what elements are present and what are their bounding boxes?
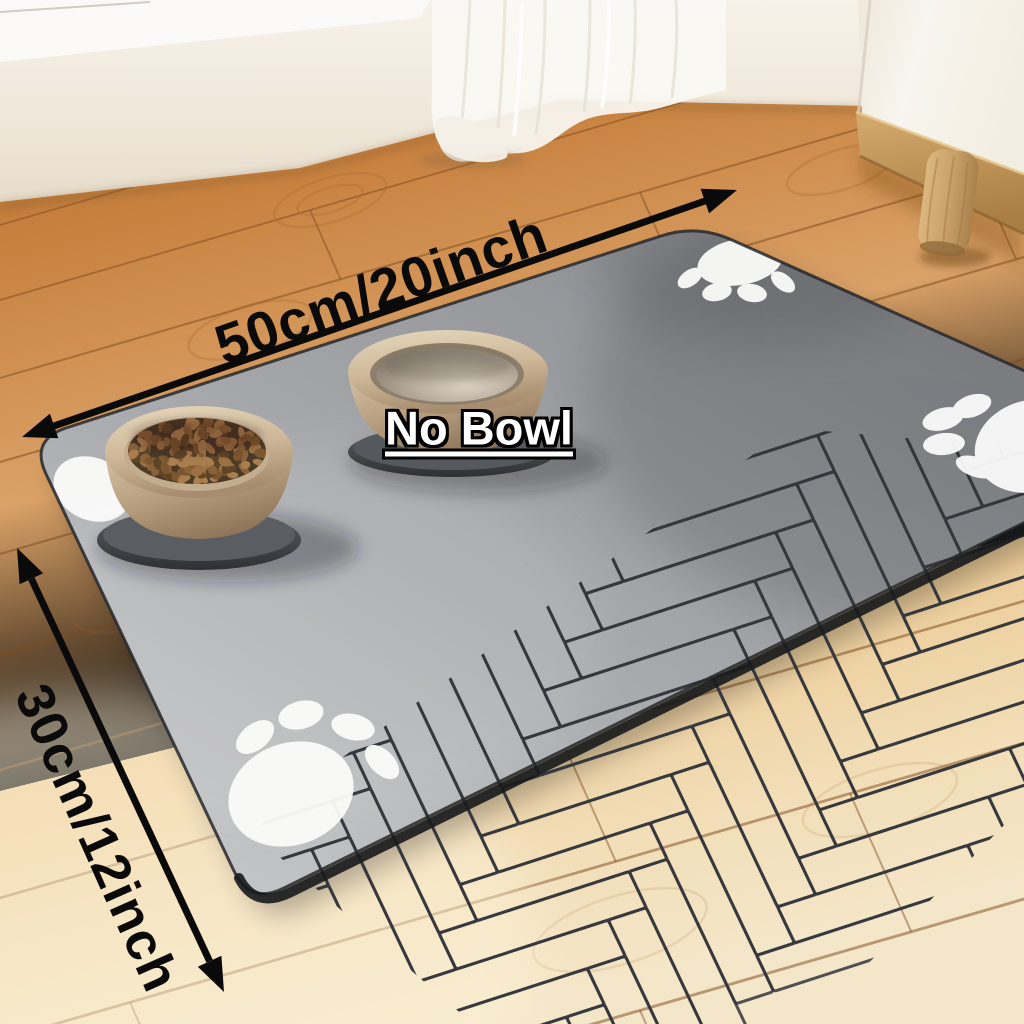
no-bowl-label: No Bowl [385, 401, 573, 456]
scene-svg [0, 0, 1024, 1024]
water-inner-shadow [383, 350, 511, 382]
kibble-top-shadow [131, 418, 263, 454]
product-photo: 50cm/20inch 30cm/12inch No Bowl [0, 0, 1024, 1024]
